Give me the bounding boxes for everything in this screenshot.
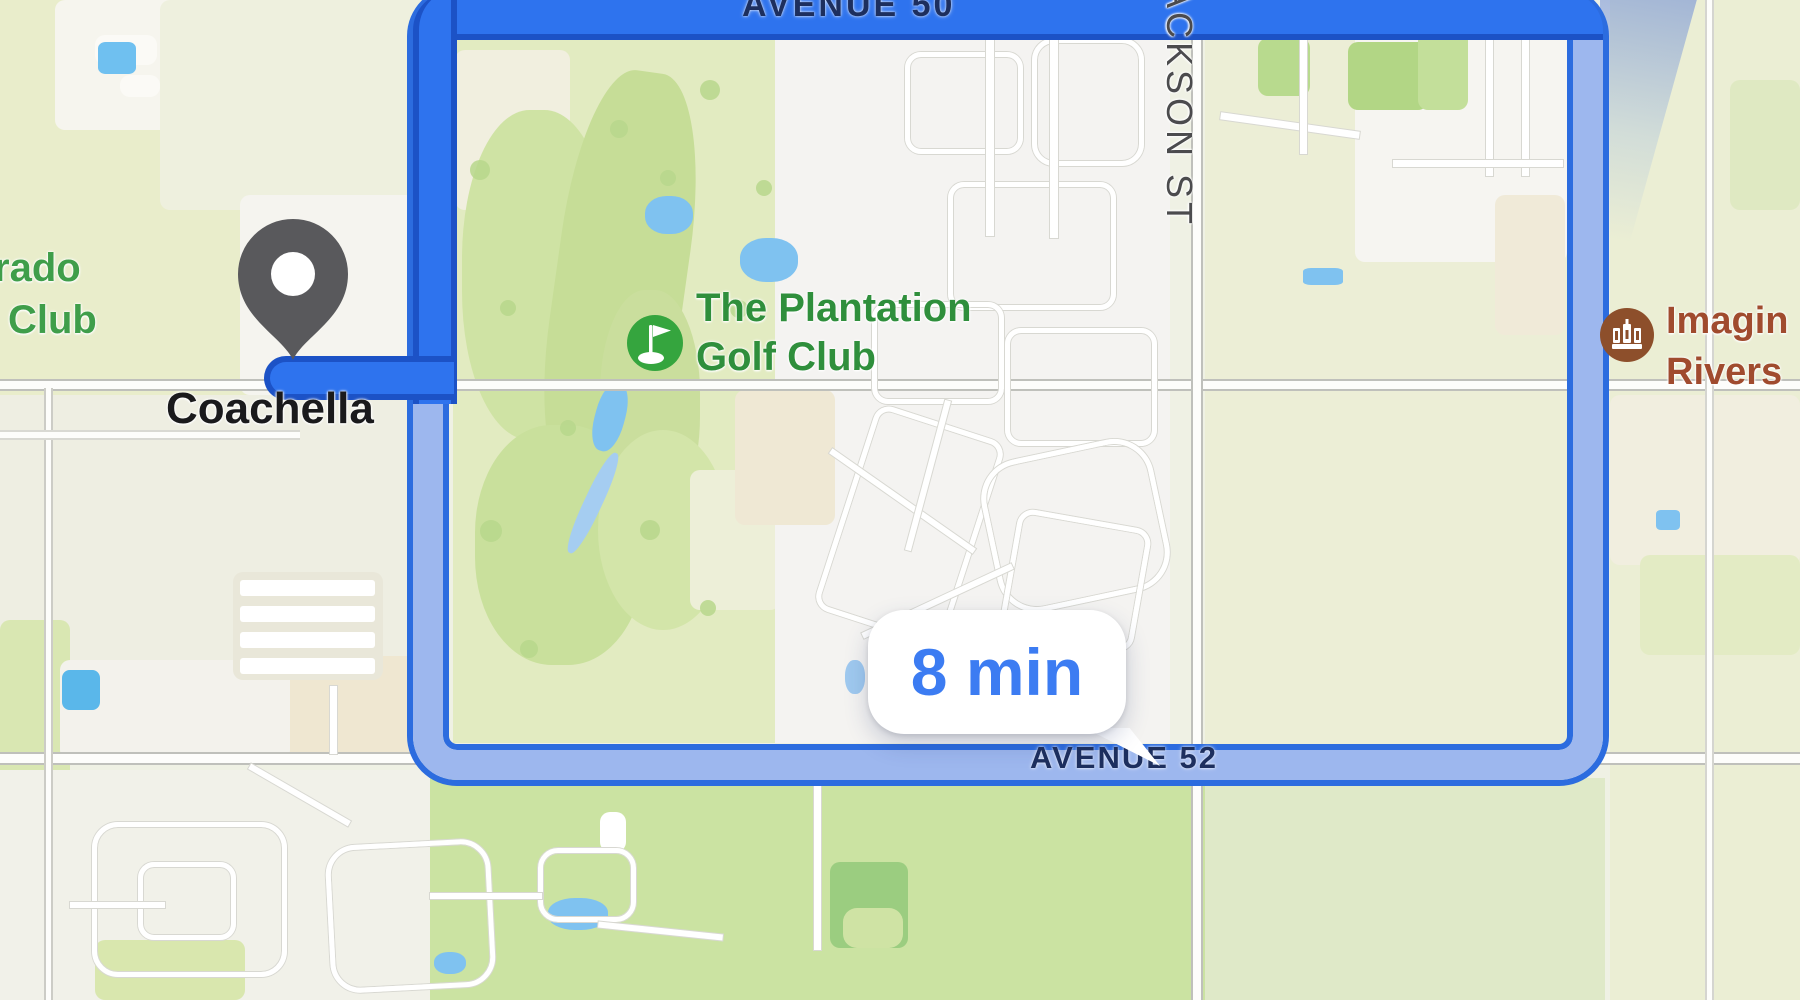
- pond: [98, 42, 136, 74]
- pond: [1656, 510, 1680, 530]
- street-loop: [138, 862, 236, 940]
- eta-callout[interactable]: 8 min: [868, 610, 1126, 734]
- pond: [62, 670, 100, 710]
- poi-label-line: Club: [0, 294, 97, 346]
- street-label-jackson-st: JACKSON ST: [1158, 0, 1200, 228]
- lawn-patch: [1640, 555, 1800, 655]
- street: [814, 776, 821, 950]
- terrain-patch: [160, 0, 440, 210]
- poi-label-line: Golf Club: [696, 333, 972, 382]
- street-label-avenue-50: AVENUE 50: [742, 0, 955, 25]
- city-label: Coachella: [166, 384, 374, 434]
- street-loop: [324, 838, 497, 994]
- poi-museum[interactable]: [1598, 306, 1656, 369]
- road: [330, 686, 337, 754]
- building: [600, 812, 626, 852]
- street: [70, 902, 165, 908]
- building: [240, 606, 375, 622]
- poi-label-line: Rivers: [1666, 347, 1788, 398]
- poi-label-line: The Plantation: [696, 284, 972, 333]
- destination-pin-icon[interactable]: [230, 216, 356, 362]
- poi-right-partial-label[interactable]: Imagin Rivers: [1666, 296, 1788, 398]
- road: [44, 388, 53, 1000]
- map-canvas[interactable]: AVENUE 50 AVENUE 52 JACKSON ST Coachella…: [0, 0, 1800, 1000]
- poi-label-line: Imagin: [1666, 296, 1788, 347]
- building: [120, 75, 160, 97]
- building: [240, 632, 375, 648]
- road: [1705, 0, 1714, 1000]
- eta-callout-text: 8 min: [911, 634, 1083, 710]
- route-selected-left-segment[interactable]: [413, 0, 457, 404]
- building: [240, 658, 375, 674]
- lawn-patch: [1730, 80, 1800, 210]
- poi-left-partial-label[interactable]: rado Club: [0, 242, 97, 346]
- poi-golf-club-label[interactable]: The Plantation Golf Club: [696, 284, 972, 382]
- route-selected-top-segment[interactable]: [413, 0, 1603, 40]
- museum-building-icon: [1598, 306, 1656, 364]
- street-loop: [538, 848, 636, 922]
- poi-golf-club[interactable]: [625, 313, 685, 378]
- golf-flag-icon: [625, 313, 685, 373]
- lawn-patch: [843, 908, 903, 948]
- terrain-patch: [1205, 778, 1605, 1000]
- poi-label-line: rado: [0, 242, 97, 294]
- building: [240, 580, 375, 596]
- street: [430, 893, 542, 899]
